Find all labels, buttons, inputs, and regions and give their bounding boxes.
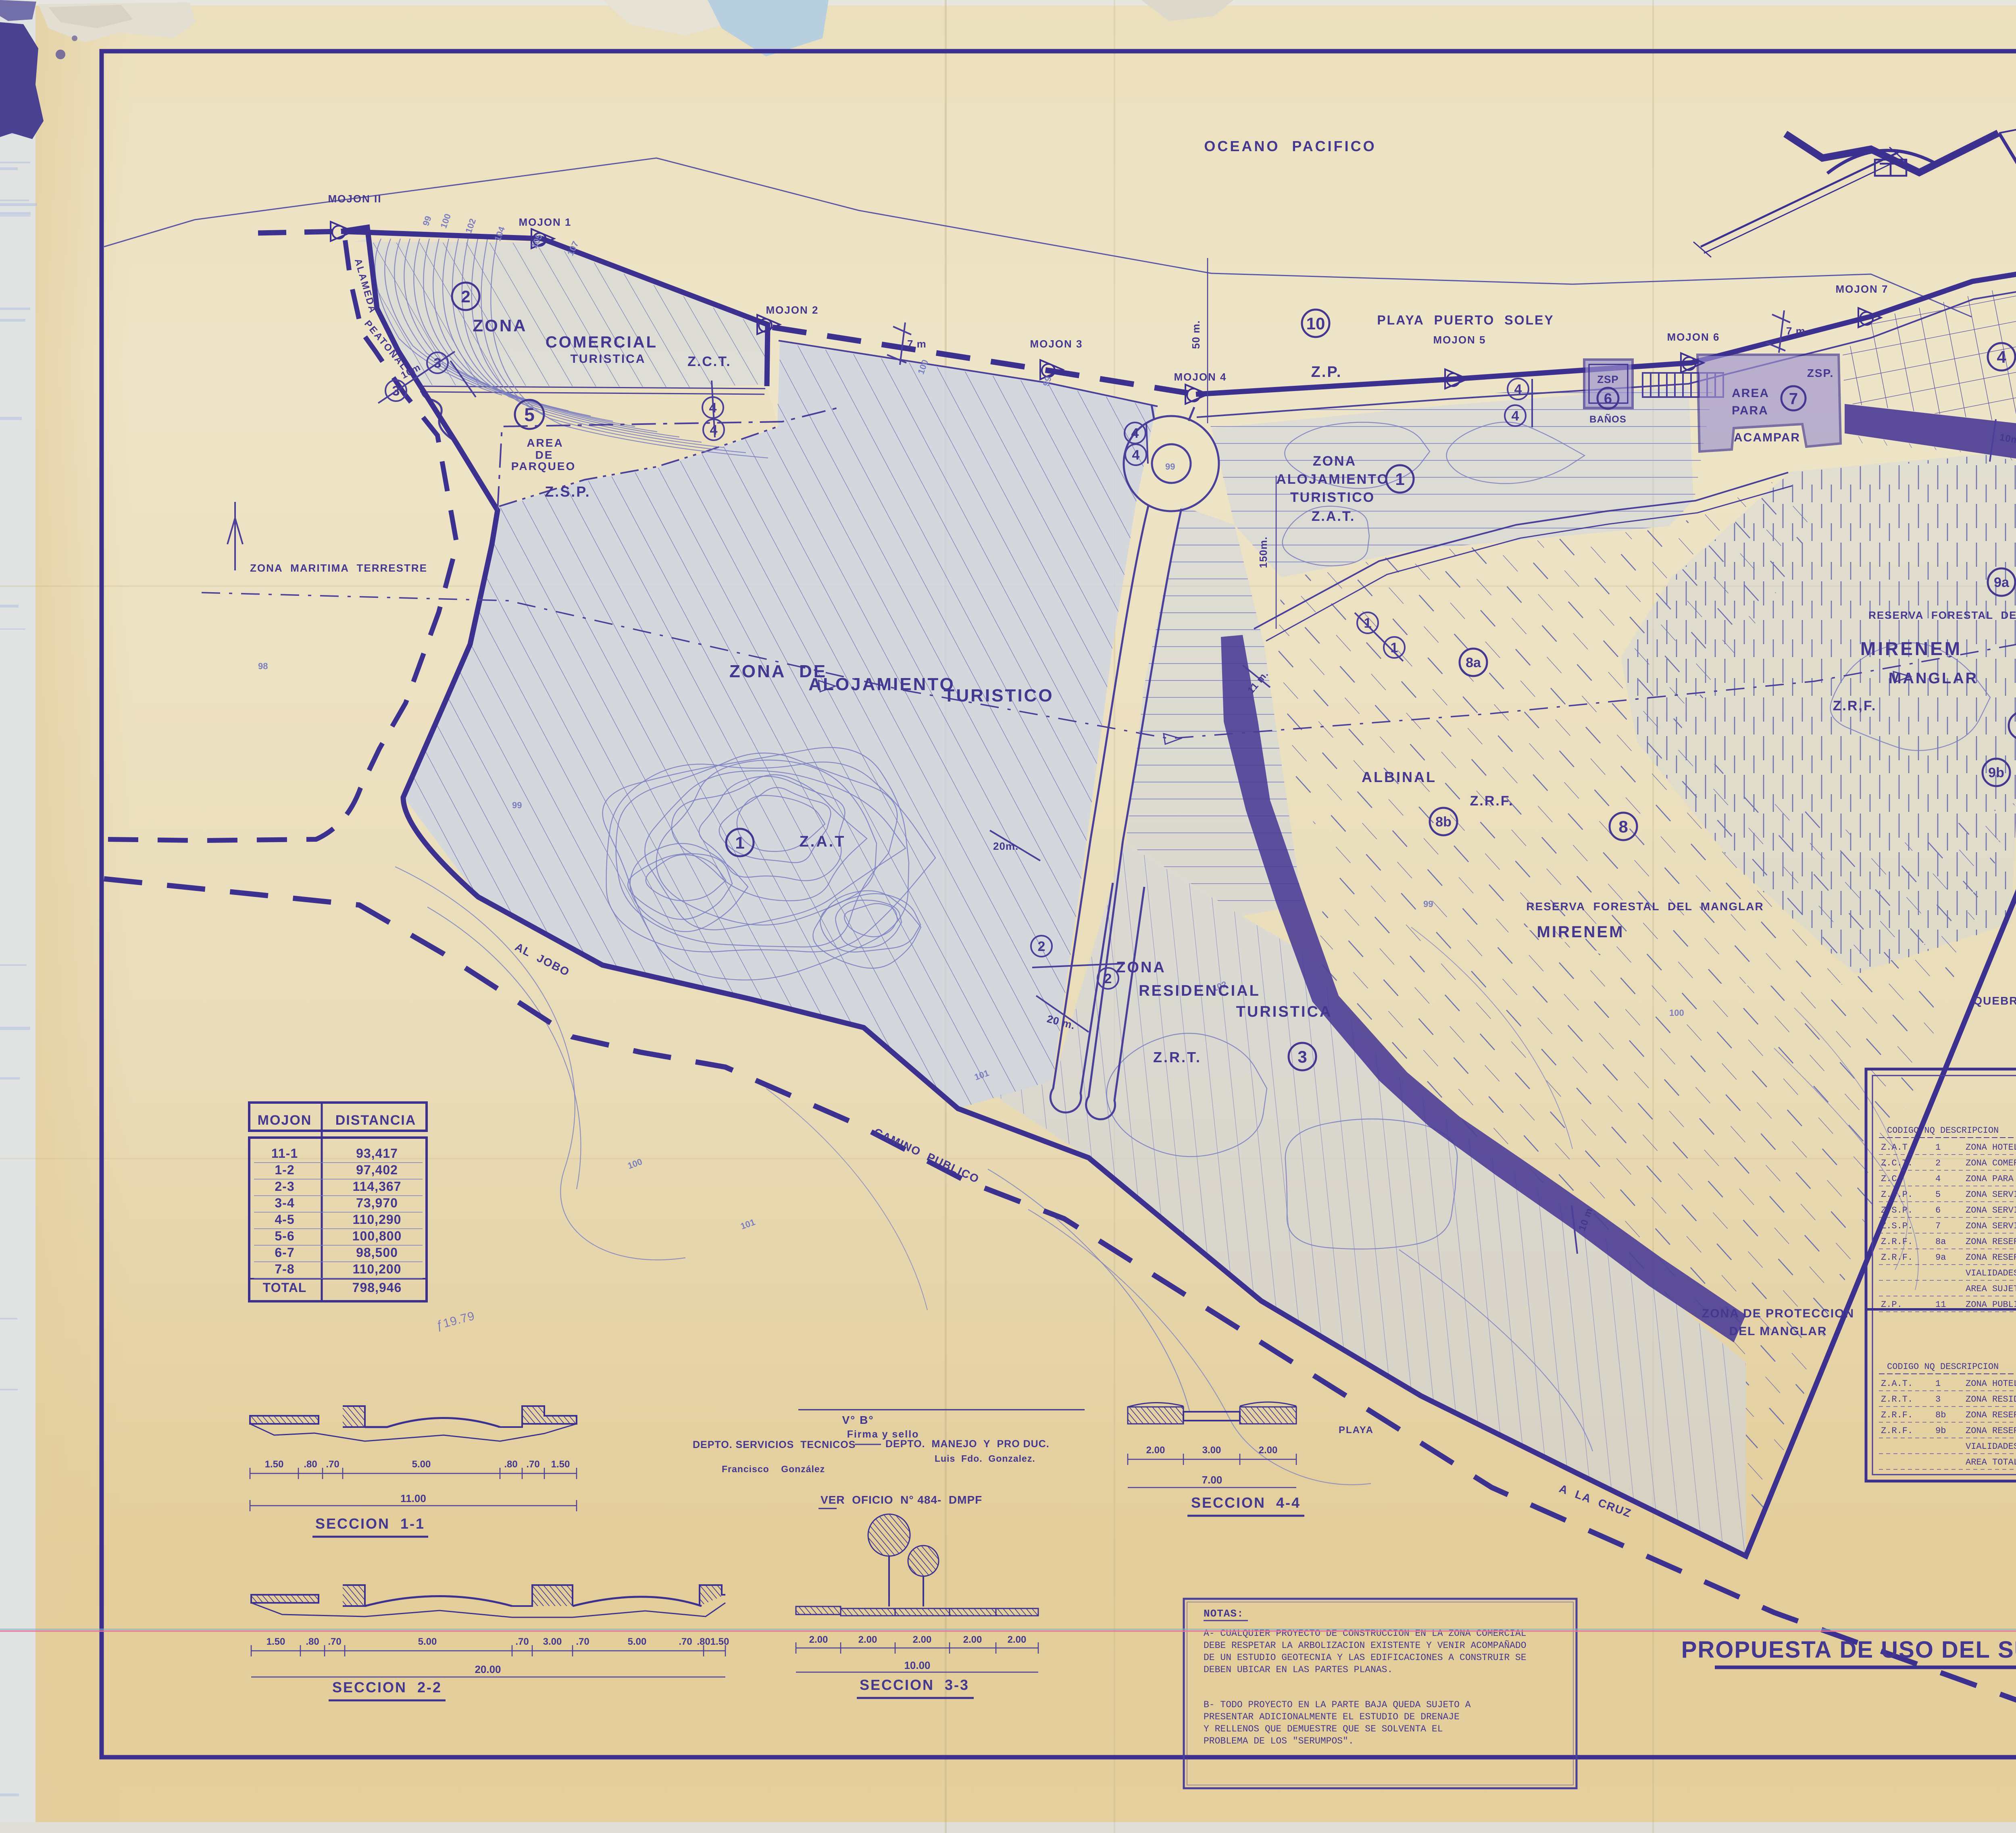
svg-text:.80: .80 — [697, 1636, 710, 1647]
svg-text:8a: 8a — [1935, 1237, 1946, 1247]
svg-text:Z.R.F.: Z.R.F. — [1881, 1410, 1913, 1420]
svg-text:2.00: 2.00 — [1008, 1634, 1027, 1645]
svg-text:ALOJAMIENTO: ALOJAMIENTO — [1276, 472, 1389, 487]
svg-text:VER OFICIO N° 484- DMPF: VER OFICIO N° 484- DMPF — [821, 1494, 982, 1506]
svg-text:1.50: 1.50 — [265, 1459, 284, 1470]
svg-text:99: 99 — [512, 800, 522, 810]
svg-text:DEPTO. SERVICIOS TECNICOS: DEPTO. SERVICIOS TECNICOS — [693, 1439, 856, 1450]
svg-text:4-5: 4-5 — [275, 1212, 294, 1227]
svg-text:ZONA SERVICIOS PUBLICOS (AREA: ZONA SERVICIOS PUBLICOS (AREA ACAMPAR) — [1966, 1221, 2016, 1231]
svg-text:20.00: 20.00 — [475, 1663, 501, 1675]
svg-text:ALOJAMIENTO: ALOJAMIENTO — [808, 674, 955, 694]
svg-text:7 m: 7 m — [907, 338, 927, 350]
svg-text:Z.C.T.: Z.C.T. — [1881, 1158, 1913, 1168]
svg-text:ZONA PARA COOPERATIVA: ZONA PARA COOPERATIVA — [1966, 1174, 2016, 1184]
svg-text:Z.S.P.: Z.S.P. — [1881, 1221, 1913, 1231]
svg-text:ZONA COMERCIAL TURISTICA: ZONA COMERCIAL TURISTICA — [1966, 1158, 2016, 1168]
svg-text:Z.S.P.: Z.S.P. — [1881, 1205, 1913, 1215]
svg-text:MIRENEM: MIRENEM — [1860, 638, 1962, 659]
svg-text:7-8: 7-8 — [275, 1262, 294, 1276]
svg-text:6: 6 — [1604, 390, 1612, 407]
svg-text:20m.: 20m. — [993, 840, 1018, 852]
svg-text:Z.C.T.: Z.C.T. — [687, 354, 731, 369]
svg-text:10: 10 — [1306, 314, 1325, 333]
svg-text:.70: .70 — [328, 1636, 341, 1647]
svg-text:Z.P.: Z.P. — [1881, 1300, 1902, 1310]
svg-text:ZONA RESERVA FORESTAL (A CEDER: ZONA RESERVA FORESTAL (A CEDER A MIRENEM… — [1966, 1426, 2016, 1436]
svg-text:ZONA HOTELERA: ZONA HOTELERA — [1966, 1142, 2016, 1153]
svg-text:MOJON 6: MOJON 6 — [1667, 331, 1720, 343]
svg-text:9a: 9a — [1935, 1253, 1946, 1263]
svg-text:4: 4 — [1514, 382, 1522, 397]
svg-text:TURISTICO: TURISTICO — [1290, 490, 1375, 505]
svg-text:AREA: AREA — [1732, 387, 1769, 400]
svg-text:11: 11 — [1935, 1300, 1946, 1310]
svg-text:MOJON 7: MOJON 7 — [1835, 283, 1888, 295]
svg-text:Z.A.T: Z.A.T — [800, 833, 846, 850]
svg-text:Z.A.T.: Z.A.T. — [1881, 1142, 1913, 1153]
svg-text:Francisco González: Francisco González — [722, 1464, 825, 1474]
svg-text:ZONA RESERVA FORESTAL (A CEDER: ZONA RESERVA FORESTAL (A CEDER A MIRENEM… — [1966, 1253, 2016, 1263]
svg-text:MOJON: MOJON — [258, 1113, 312, 1128]
svg-text:.70: .70 — [679, 1636, 692, 1647]
svg-text:11.00: 11.00 — [400, 1492, 426, 1504]
svg-text:9b: 9b — [1988, 765, 2004, 780]
svg-text:ZONA RESERVA FORESTAL (REGULAD: ZONA RESERVA FORESTAL (REGULADO POR MIRE… — [1966, 1237, 2016, 1247]
svg-text:DEPTO. MANEJO Y PRO DUC.: DEPTO. MANEJO Y PRO DUC. — [885, 1438, 1050, 1450]
svg-text:3: 3 — [1935, 1394, 1941, 1404]
svg-text:5.00: 5.00 — [628, 1636, 647, 1647]
svg-text:4: 4 — [1512, 408, 1519, 424]
svg-text:SECCION 2-2: SECCION 2-2 — [332, 1679, 442, 1696]
svg-text:7: 7 — [1789, 390, 1798, 408]
svg-text:8b: 8b — [1935, 1410, 1946, 1420]
svg-text:8: 8 — [1618, 817, 1628, 836]
svg-text:PARQUEO: PARQUEO — [511, 460, 576, 472]
svg-text:2.00: 2.00 — [963, 1634, 982, 1645]
svg-text:DEBE RESPETAR LA ARBOLIZACION: DEBE RESPETAR LA ARBOLIZACION EXISTENTE … — [1204, 1640, 1527, 1651]
svg-text:ZONA: ZONA — [473, 316, 527, 335]
svg-text:4: 4 — [1132, 447, 1140, 463]
svg-text:COMERCIAL: COMERCIAL — [546, 333, 658, 351]
svg-text:2: 2 — [1935, 1158, 1941, 1168]
svg-text:3.00: 3.00 — [1202, 1445, 1221, 1456]
svg-text:5.00: 5.00 — [412, 1459, 431, 1470]
svg-text:RESERVA FORESTAL DEL MANGLA: RESERVA FORESTAL DEL MANGLAR — [1868, 609, 2016, 621]
svg-text:ZONA: ZONA — [1116, 959, 1166, 976]
svg-text:1: 1 — [1935, 1142, 1941, 1153]
svg-text:7 m: 7 m — [1786, 325, 1806, 337]
svg-text:RESERVA FORESTAL DEL MANGLA: RESERVA FORESTAL DEL MANGLAR — [1526, 900, 1764, 913]
svg-text:Luis Fdo. Gonzalez.: Luis Fdo. Gonzalez. — [935, 1453, 1035, 1464]
svg-text:4: 4 — [1131, 426, 1139, 441]
svg-text:9b: 9b — [1935, 1426, 1946, 1436]
svg-text:2.00: 2.00 — [809, 1634, 828, 1645]
svg-text:2.00: 2.00 — [1259, 1445, 1278, 1456]
svg-text:2-3: 2-3 — [275, 1179, 294, 1194]
svg-text:2: 2 — [1038, 939, 1045, 954]
svg-text:2: 2 — [461, 287, 470, 306]
svg-text:AREA SUJETA A PLAN REGULADOR: AREA SUJETA A PLAN REGULADOR — [1966, 1284, 2016, 1294]
svg-text:1: 1 — [1395, 470, 1404, 489]
svg-text:5: 5 — [1935, 1190, 1941, 1200]
svg-text:100,800: 100,800 — [352, 1229, 402, 1243]
svg-text:10.00: 10.00 — [904, 1659, 930, 1671]
svg-text:TOTAL: TOTAL — [263, 1280, 307, 1295]
svg-text:1-2: 1-2 — [275, 1163, 294, 1177]
svg-text:V° B°: V° B° — [842, 1414, 874, 1426]
svg-text:3.00: 3.00 — [543, 1636, 562, 1647]
svg-text:NOTAS:: NOTAS: — [1204, 1608, 1244, 1620]
svg-text:MOJON II: MOJON II — [328, 193, 381, 205]
svg-text:73,970: 73,970 — [356, 1196, 398, 1210]
svg-text:CODIGO NQ DESCRIPCION: CODIGO NQ DESCRIPCION — [1887, 1362, 1999, 1372]
svg-text:9a: 9a — [1994, 575, 2010, 590]
svg-text:1.50: 1.50 — [710, 1636, 729, 1647]
svg-text:.70: .70 — [576, 1636, 589, 1647]
svg-text:2.00: 2.00 — [858, 1634, 877, 1645]
svg-text:DEL MANGLAR: DEL MANGLAR — [1729, 1325, 1827, 1338]
svg-text:ZONA MARITIMA TERRESTRE: ZONA MARITIMA TERRESTRE — [250, 562, 427, 574]
svg-text:2.00: 2.00 — [913, 1634, 932, 1645]
svg-text:5.00: 5.00 — [418, 1636, 437, 1647]
svg-text:Z.S.P.: Z.S.P. — [1881, 1190, 1913, 1200]
svg-text:AREA: AREA — [527, 437, 563, 449]
svg-text:110,200: 110,200 — [353, 1262, 402, 1276]
svg-text:TURISTICA: TURISTICA — [571, 352, 646, 366]
svg-text:MANGLAR: MANGLAR — [1889, 670, 1978, 687]
svg-text:SECCION 4-4: SECCION 4-4 — [1191, 1494, 1301, 1511]
svg-text:SECCION 1-1: SECCION 1-1 — [315, 1515, 425, 1532]
svg-text:3: 3 — [1297, 1047, 1307, 1066]
svg-text:ZONA PUBLICA (FAJA INALIENABLE: ZONA PUBLICA (FAJA INALIENABLE) — [1966, 1300, 2016, 1310]
svg-text:DE: DE — [535, 449, 554, 461]
svg-text:1.50: 1.50 — [551, 1459, 570, 1470]
svg-text:PLAYA PUERTO SOLEY: PLAYA PUERTO SOLEY — [1377, 313, 1554, 327]
svg-text:ZONA HOTELERA: ZONA HOTELERA — [1966, 1379, 2016, 1389]
svg-text:ACAMPAR: ACAMPAR — [1734, 431, 1800, 444]
svg-text:B- TODO PROYECTO EN LA PA: B- TODO PROYECTO EN LA PARTE BAJA QUEDA … — [1204, 1700, 1471, 1710]
svg-text:PROPUESTA DE USO DEL SUELO. Y: PROPUESTA DE USO DEL SUELO. Y VIALIDADES — [1681, 1637, 2016, 1663]
svg-text:.70: .70 — [326, 1459, 339, 1470]
svg-text:3-4: 3-4 — [275, 1196, 294, 1210]
svg-text:.80: .80 — [306, 1636, 319, 1647]
svg-text:AREA TOTAL SUJETA A PLAN REGUL: AREA TOTAL SUJETA A PLAN REGULADOR — [1966, 1457, 2016, 1467]
svg-text:2.00: 2.00 — [1146, 1445, 1165, 1456]
svg-text:1: 1 — [1935, 1379, 1941, 1389]
svg-text:114,367: 114,367 — [353, 1179, 402, 1194]
svg-text:ZONA SERVICIOS PUBLICOS (PARQU: ZONA SERVICIOS PUBLICOS (PARQUEOS) — [1966, 1190, 2016, 1200]
svg-text:7: 7 — [1935, 1221, 1941, 1231]
svg-text:Z.R.F.: Z.R.F. — [1881, 1426, 1913, 1436]
svg-text:MOJON 3: MOJON 3 — [1030, 338, 1083, 350]
svg-text:Z.C.: Z.C. — [1881, 1174, 1902, 1184]
svg-text:ZONA RESERVA FORESTAL (REGULAD: ZONA RESERVA FORESTAL (REGULADO POR MIRE… — [1966, 1410, 2016, 1420]
svg-text:ZONA SERVICIOS PUBLICOS (BAÑOS: ZONA SERVICIOS PUBLICOS (BAÑOS) — [1966, 1205, 2016, 1215]
svg-text:RESIDENCIAL: RESIDENCIAL — [1139, 982, 1260, 999]
svg-text:1.50: 1.50 — [267, 1636, 285, 1647]
svg-text:7.00: 7.00 — [1202, 1474, 1223, 1486]
svg-text:VIALIDADES: VIALIDADES — [1966, 1442, 2016, 1452]
svg-text:150m.: 150m. — [1257, 537, 1269, 568]
svg-text:Z.A.T.: Z.A.T. — [1881, 1379, 1913, 1389]
svg-text:TURISTICA: TURISTICA — [1236, 1003, 1333, 1020]
svg-text:798,946: 798,946 — [352, 1280, 402, 1295]
svg-text:.70: .70 — [526, 1459, 539, 1470]
svg-text:99: 99 — [1165, 462, 1175, 472]
svg-text:QUEBRADA DE AGUA S.A.: QUEBRADA DE AGUA S.A. — [1973, 995, 2016, 1007]
svg-text:PROBLEMA DE LOS "SERUMPOS".: PROBLEMA DE LOS "SERUMPOS". — [1204, 1736, 1354, 1746]
svg-text:Z.R.F.: Z.R.F. — [1881, 1253, 1913, 1263]
svg-text:ZSP: ZSP — [1597, 373, 1619, 385]
svg-text:Z.P.: Z.P. — [1311, 364, 1342, 381]
svg-text:ZONA: ZONA — [1313, 454, 1356, 469]
svg-text:ALBINAL: ALBINAL — [1362, 769, 1437, 785]
svg-text:93,417: 93,417 — [356, 1146, 398, 1161]
svg-text:MOJON 4: MOJON 4 — [1174, 371, 1227, 383]
svg-text:6: 6 — [1935, 1205, 1941, 1215]
svg-text:8b: 8b — [1435, 814, 1452, 830]
svg-text:Z.S.P.: Z.S.P. — [545, 483, 590, 500]
svg-text:Z.A.T.: Z.A.T. — [1312, 509, 1356, 524]
svg-text:PLAYA: PLAYA — [1339, 1425, 1374, 1436]
svg-text:.80: .80 — [504, 1459, 517, 1470]
svg-text:8a: 8a — [1466, 655, 1481, 670]
svg-text:Z.R.F.: Z.R.F. — [1470, 793, 1514, 809]
svg-text:ZONA DE PROTECCION: ZONA DE PROTECCION — [1702, 1307, 1854, 1320]
svg-text:.80: .80 — [304, 1459, 317, 1470]
svg-text:MOJON 5: MOJON 5 — [1433, 334, 1486, 346]
svg-text:99: 99 — [1423, 899, 1433, 909]
svg-text:DEBEN UBICAR EN LAS PARTES PLA: DEBEN UBICAR EN LAS PARTES PLANAS. — [1204, 1664, 1393, 1675]
svg-text:ZONA RESIDENCIAL: ZONA RESIDENCIAL — [1966, 1394, 2016, 1404]
svg-text:TURISTICO: TURISTICO — [943, 686, 1054, 705]
svg-text:97,402: 97,402 — [356, 1163, 398, 1177]
svg-text:DE UN ESTUDIO GEOTECNIA Y LAS: DE UN ESTUDIO GEOTECNIA Y LAS EDIFICACIO… — [1204, 1652, 1527, 1663]
svg-text:PARA: PARA — [1732, 404, 1768, 417]
svg-text:1: 1 — [735, 833, 744, 852]
svg-text:98: 98 — [258, 661, 268, 671]
svg-text:PRESENTAR ADICIONALMENTE: PRESENTAR ADICIONALMENTE EL ESTUDIO DE D… — [1204, 1712, 1460, 1722]
svg-text:5-6: 5-6 — [275, 1229, 294, 1243]
svg-text:Z.R.F.: Z.R.F. — [1881, 1237, 1913, 1247]
svg-text:ZSP.: ZSP. — [1807, 367, 1834, 379]
svg-text:100: 100 — [1669, 1008, 1684, 1018]
svg-text:Z.R.T.: Z.R.T. — [1153, 1049, 1202, 1065]
svg-text:CODIGO NQ DESCRIPCION: CODIGO NQ DESCRIPCION — [1887, 1126, 1999, 1136]
svg-text:11-1: 11-1 — [271, 1146, 298, 1161]
svg-text:BAÑOS: BAÑOS — [1589, 414, 1627, 425]
svg-text:4: 4 — [1997, 347, 2006, 366]
svg-text:6-7: 6-7 — [275, 1245, 294, 1260]
svg-text:DISTANCIA: DISTANCIA — [335, 1113, 417, 1128]
svg-text:98,500: 98,500 — [356, 1245, 398, 1260]
svg-text:50 m.: 50 m. — [1190, 320, 1202, 349]
svg-text:MOJON 2: MOJON 2 — [766, 304, 818, 316]
svg-text:.70: .70 — [515, 1636, 529, 1647]
svg-text:OCEANO PACIFICO: OCEANO PACIFICO — [1204, 138, 1376, 154]
svg-text:Z.R,F.: Z.R,F. — [1833, 698, 1877, 714]
svg-text:5: 5 — [524, 404, 535, 425]
svg-text:Z.R.T.: Z.R.T. — [1881, 1394, 1913, 1404]
svg-text:4: 4 — [1935, 1174, 1941, 1184]
svg-text:2: 2 — [1104, 971, 1112, 986]
svg-text:VIALIDADES: VIALIDADES — [1966, 1268, 2016, 1278]
svg-text:Y RELLENOS QUE DEMUESTRE: Y RELLENOS QUE DEMUESTRE QUE SE SOLVENTA… — [1204, 1724, 1443, 1734]
svg-text:MIRENEM: MIRENEM — [1537, 923, 1624, 941]
svg-text:110,290: 110,290 — [353, 1212, 402, 1227]
svg-text:MOJON 1: MOJON 1 — [519, 216, 571, 228]
svg-text:SECCION 3-3: SECCION 3-3 — [860, 1677, 969, 1693]
